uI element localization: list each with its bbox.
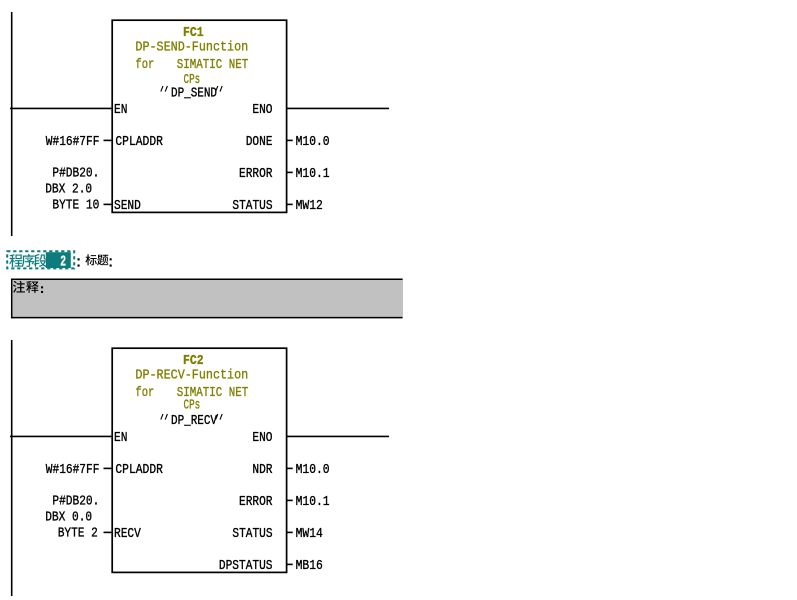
svg-text:ERROR: ERROR (239, 494, 273, 510)
svg-text:DP-SEND-Function: DP-SEND-Function (135, 40, 248, 56)
svg-text:W#16#7FF: W#16#7FF (46, 134, 100, 150)
svg-text:DP_RECV: DP_RECV (171, 413, 217, 429)
svg-text:M10.0: M10.0 (296, 134, 330, 150)
svg-text:for: for (135, 385, 154, 401)
svg-text:CPLADDR: CPLADDR (115, 462, 163, 478)
svg-text:CPs: CPs (184, 398, 201, 414)
svg-text:STATUS: STATUS (232, 198, 272, 214)
svg-text:SIMATIC NET: SIMATIC NET (177, 57, 248, 73)
svg-text:BYTE 2: BYTE 2 (58, 525, 98, 541)
svg-text:MB16: MB16 (296, 558, 323, 574)
svg-text:CPLADDR: CPLADDR (115, 134, 163, 150)
svg-text:EN: EN (114, 102, 127, 118)
svg-text:DONE: DONE (246, 134, 273, 150)
svg-text:DP_SEND: DP_SEND (171, 86, 217, 102)
svg-text:EN: EN (114, 430, 127, 446)
svg-text:M10.1: M10.1 (296, 166, 330, 182)
svg-text:DP-RECV-Function: DP-RECV-Function (135, 368, 248, 384)
svg-text:SEND: SEND (114, 198, 141, 214)
svg-text:MW14: MW14 (296, 526, 323, 542)
svg-text:ENO: ENO (252, 430, 272, 446)
svg-text:ERROR: ERROR (239, 166, 273, 182)
svg-text:for: for (135, 57, 154, 73)
svg-text:DBX 2.0: DBX 2.0 (45, 181, 92, 197)
svg-text:DPSTATUS: DPSTATUS (219, 558, 273, 574)
svg-text:2: 2 (60, 253, 66, 270)
svg-text:NDR: NDR (252, 462, 273, 478)
svg-text:MW12: MW12 (296, 198, 323, 214)
svg-text:P#DB20.: P#DB20. (52, 165, 99, 181)
svg-text:ENO: ENO (252, 102, 272, 118)
svg-text:BYTE 10: BYTE 10 (52, 197, 99, 213)
svg-text:W#16#7FF: W#16#7FF (46, 462, 100, 478)
svg-text:M10.0: M10.0 (296, 462, 330, 478)
svg-text:M10.1: M10.1 (296, 494, 330, 510)
svg-text:P#DB20.: P#DB20. (52, 493, 99, 509)
svg-text:DBX 0.0: DBX 0.0 (45, 509, 92, 525)
svg-text:RECV: RECV (114, 526, 141, 542)
svg-text:STATUS: STATUS (232, 526, 272, 542)
